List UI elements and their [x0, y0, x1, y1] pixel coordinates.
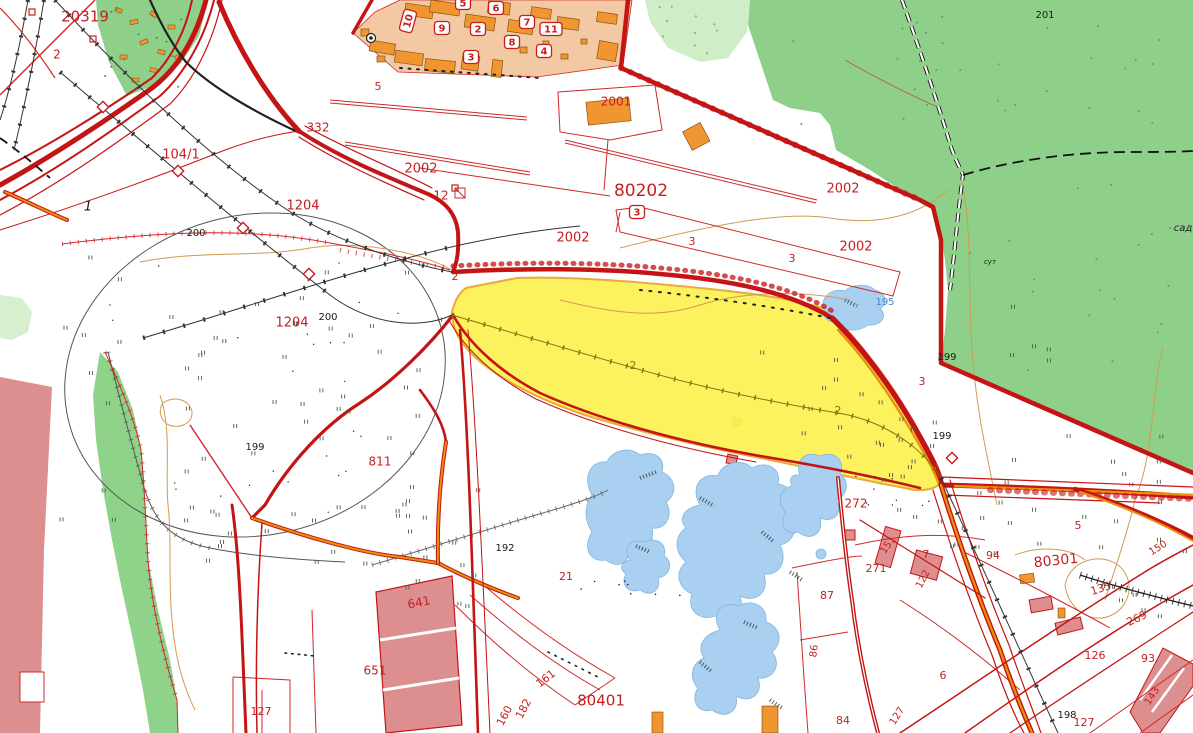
pond — [816, 549, 826, 559]
svg-text:4: 4 — [541, 47, 548, 58]
svg-text:11: 11 — [544, 25, 558, 36]
building-number-badge: 5 — [456, 0, 471, 10]
green-band-area — [93, 352, 178, 733]
map-label: 2 — [452, 270, 459, 283]
lake — [692, 603, 779, 715]
map-svg: 5671192843103 203192104/1332120420021220… — [0, 0, 1193, 733]
building-number-badge: 8 — [505, 36, 520, 49]
map-label: 2001 — [601, 95, 632, 109]
map-label: 160 — [494, 703, 515, 728]
map-label: сад — [1174, 223, 1193, 234]
svg-text:9: 9 — [439, 24, 446, 35]
map-label: 332 — [307, 121, 330, 135]
boundary-diamond-icon — [97, 101, 108, 112]
map-label: 1 — [84, 200, 92, 215]
map-label: 80202 — [614, 181, 668, 201]
map-label: 3 — [789, 252, 796, 265]
map-label: 104/1 — [162, 148, 199, 163]
map-label: 811 — [369, 455, 392, 469]
svg-text:2: 2 — [475, 25, 482, 36]
gray-track — [372, 490, 608, 565]
map-label: 2002 — [404, 162, 437, 177]
map-label: 1204 — [286, 199, 319, 214]
svg-text:3: 3 — [634, 208, 641, 219]
map-label: 199 — [932, 431, 951, 442]
building-number-badge: 3 — [630, 206, 645, 219]
map-label: 182 — [513, 696, 534, 721]
map-label: 5 — [375, 80, 382, 93]
map-label: 20319 — [61, 8, 109, 26]
map-label: 2 — [835, 404, 842, 417]
map-label: 127 — [1074, 716, 1095, 729]
map-label: 84 — [836, 714, 850, 727]
map-label: 201 — [1035, 10, 1054, 21]
svg-text:7: 7 — [524, 18, 531, 29]
map-label: 80301 — [1033, 551, 1079, 572]
lake — [622, 540, 670, 593]
map-label: сут — [984, 258, 997, 266]
boundary-diamond-icon — [946, 452, 957, 463]
map-label: 2002 — [826, 182, 859, 197]
map-label: 200 — [186, 228, 205, 239]
building-number-badge: 9 — [435, 22, 450, 35]
map-label: 200 — [318, 312, 337, 323]
svg-text:6: 6 — [493, 4, 500, 15]
map-label: 5 — [1075, 519, 1082, 532]
map-label: 2 — [53, 48, 61, 62]
map-label: 12 — [433, 189, 448, 203]
building-number-badge: 11 — [540, 23, 562, 36]
map-label: 7 — [923, 548, 930, 561]
boundary-diamond-icon — [237, 222, 248, 233]
map-label: 651 — [364, 664, 387, 678]
map-label: 127 — [888, 705, 907, 727]
map-label: 272 — [845, 497, 868, 511]
map-label: 161 — [533, 667, 558, 690]
building-number-badge: 2 — [471, 23, 486, 36]
map-label: 86 — [808, 644, 821, 658]
svg-text:8: 8 — [509, 38, 516, 49]
cadastral-map-canvas[interactable]: 5671192843103 203192104/1332120420021220… — [0, 0, 1193, 733]
map-label: 94 — [986, 549, 1000, 562]
red-square-icon — [90, 36, 96, 42]
industrial-yard — [20, 672, 44, 702]
svg-text:5: 5 — [460, 0, 467, 10]
map-label: 192 — [495, 543, 514, 554]
map-label: 21 — [559, 570, 573, 583]
red-square-icon — [29, 9, 35, 15]
map-label: 3 — [919, 375, 926, 388]
map-label: 199 — [937, 352, 956, 363]
map-label: 1204 — [275, 316, 308, 331]
map-label: 195 — [875, 297, 894, 308]
forest-light-area — [645, 0, 750, 62]
map-label: 271 — [866, 562, 887, 575]
map-label: 93 — [1141, 652, 1155, 665]
building-number-badge: 7 — [520, 16, 535, 29]
forest-light-area — [0, 295, 32, 340]
map-label: 199 — [245, 442, 264, 453]
lake — [677, 462, 795, 619]
map-label: 80401 — [577, 692, 625, 710]
map-label: 2 — [630, 359, 637, 372]
map-label: 198 — [1057, 710, 1076, 721]
map-label: 3 — [689, 235, 696, 248]
building-number-badge: 4 — [537, 45, 552, 58]
svg-text:3: 3 — [468, 53, 475, 64]
map-label: 127 — [251, 705, 272, 718]
map-label: 87 — [820, 589, 834, 602]
map-label: 2002 — [839, 240, 872, 255]
boundary-diamond-icon — [303, 268, 314, 279]
map-label: 126 — [1085, 649, 1106, 662]
building-number-badge: 6 — [489, 2, 504, 15]
building-number-badge: 3 — [464, 51, 479, 64]
map-label: 2002 — [556, 231, 589, 246]
map-label: 150 — [1147, 539, 1169, 558]
map-label: 6 — [940, 669, 947, 682]
